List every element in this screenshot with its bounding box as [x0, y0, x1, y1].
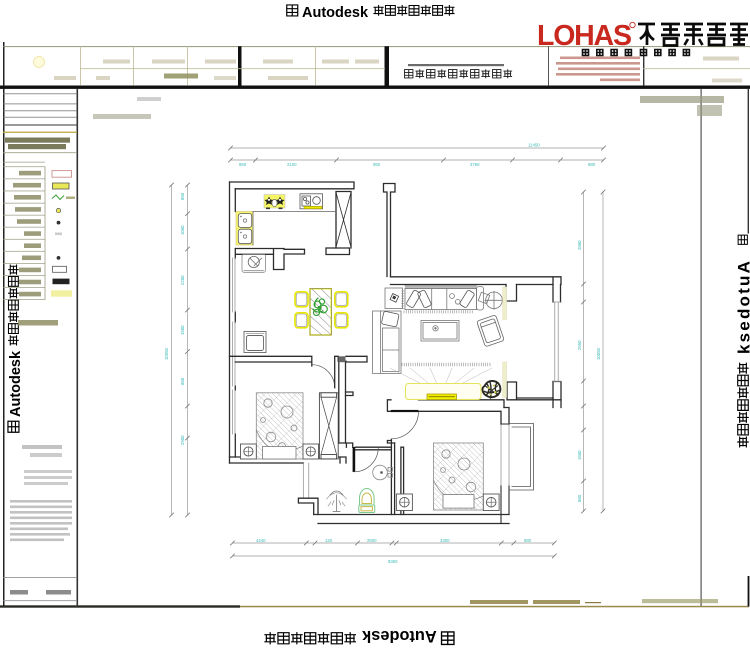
svg-text:11450: 11450	[528, 143, 540, 148]
svg-text:2100: 2100	[287, 162, 297, 167]
svg-text:10050: 10050	[596, 347, 601, 360]
svg-text:ksedotuA: ksedotuA	[735, 259, 750, 354]
svg-text:1060: 1060	[180, 225, 185, 235]
svg-text:2260: 2260	[180, 275, 185, 285]
svg-text:10950: 10950	[164, 347, 169, 360]
svg-text:2860: 2860	[577, 240, 582, 250]
svg-text:3300: 3300	[440, 538, 450, 543]
svg-text:880: 880	[524, 538, 532, 543]
svg-text:Autodesk: Autodesk	[302, 5, 369, 21]
svg-text:2900: 2900	[180, 435, 185, 445]
svg-text:880: 880	[588, 162, 596, 167]
svg-text:860: 860	[180, 377, 185, 385]
svg-text:2760: 2760	[470, 162, 480, 167]
svg-text:4240: 4240	[256, 538, 266, 543]
svg-text:LOHAS: LOHAS	[537, 20, 631, 52]
svg-text:120: 120	[325, 538, 333, 543]
svg-text:880: 880	[577, 494, 582, 502]
svg-text:850: 850	[180, 192, 185, 200]
svg-text:2550: 2550	[577, 340, 582, 350]
svg-text:1500: 1500	[180, 325, 185, 335]
svg-text:850: 850	[239, 162, 247, 167]
svg-text:2500: 2500	[367, 538, 377, 543]
svg-text:950: 950	[373, 162, 381, 167]
svg-text:9360: 9360	[388, 559, 398, 564]
svg-text:1660: 1660	[577, 450, 582, 460]
